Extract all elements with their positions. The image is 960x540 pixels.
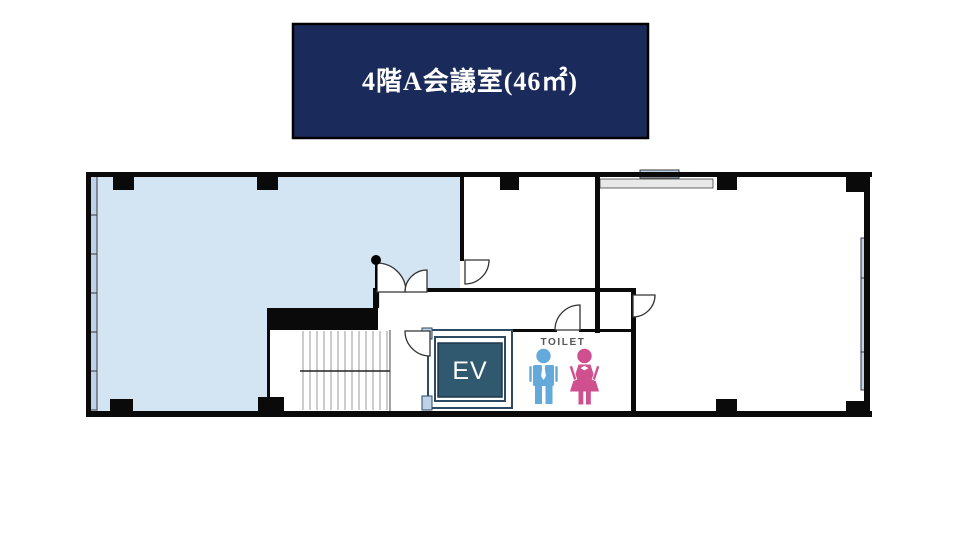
- outer-wall-top: [86, 172, 872, 177]
- wall-stairwell-thick: [268, 308, 378, 330]
- male-icon-head: [536, 349, 550, 363]
- elevator-label: EV: [452, 357, 487, 385]
- male-icon-arm-right: [555, 366, 558, 383]
- column: [717, 177, 737, 190]
- floor-plan-page: 4階A会議室(46㎡): [0, 0, 960, 540]
- title-banner: 4階A会議室(46㎡): [293, 24, 648, 138]
- male-icon-leg-left: [535, 386, 542, 404]
- elevator-jamb-bottom: [422, 396, 432, 410]
- right-room-door: [633, 295, 655, 317]
- column: [716, 399, 737, 411]
- column: [113, 177, 134, 190]
- conference-room-area: [91, 177, 460, 411]
- elevator: EV: [422, 328, 512, 410]
- toilet-door: [555, 305, 580, 330]
- female-icon-leg-right: [586, 392, 591, 405]
- column: [846, 174, 868, 192]
- floor-plan-canvas: 4階A会議室(46㎡): [0, 0, 960, 540]
- outer-wall-right: [864, 172, 870, 417]
- column: [110, 399, 133, 411]
- wall-conference-east: [460, 177, 464, 261]
- counter-strip: [600, 179, 713, 188]
- male-restroom-icon: [529, 349, 558, 404]
- stairwell-door: [405, 331, 430, 356]
- toilet-label: TOILET: [541, 337, 586, 348]
- male-icon-leg-right: [546, 386, 553, 404]
- female-icon-leg-left: [579, 392, 584, 405]
- wall-toilet-north-b: [579, 329, 636, 332]
- wall-middle-east: [595, 177, 600, 333]
- female-icon-arm-left: [569, 365, 577, 380]
- page-title: 4階A会議室(46㎡): [362, 66, 578, 96]
- male-icon-arm-left: [529, 366, 532, 383]
- middle-room-door: [465, 260, 489, 284]
- column: [257, 177, 278, 190]
- wall-corridor-north: [427, 288, 636, 292]
- female-restroom-icon: [569, 349, 600, 405]
- female-icon-arm-right: [592, 365, 600, 380]
- column: [500, 177, 519, 190]
- column: [258, 397, 284, 411]
- female-icon-head: [577, 349, 591, 363]
- outer-wall-bottom: [86, 411, 872, 417]
- column: [846, 401, 868, 415]
- stairs: [300, 330, 390, 411]
- outer-wall-left: [86, 172, 91, 417]
- wall-toilet-north-a: [512, 329, 557, 332]
- doors: [377, 260, 655, 356]
